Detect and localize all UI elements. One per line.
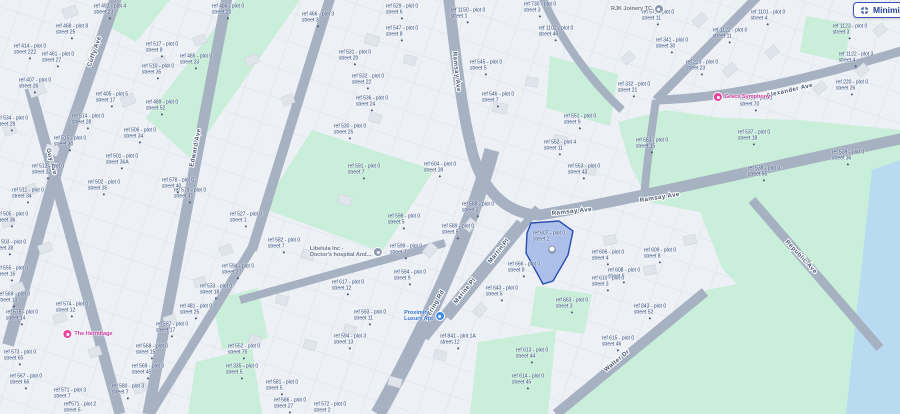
parcel-street: street 18: [200, 290, 232, 296]
parcel-label[interactable]: ref 505 - plot 0street 36: [0, 212, 28, 227]
parcel-street: street 24: [356, 102, 388, 108]
parcel-label[interactable]: ref 573 - plot 0street 65: [4, 350, 36, 365]
parcel-street: street 33: [180, 60, 212, 66]
parcel-marker-dot: [523, 276, 525, 278]
parcel-street: street 2: [533, 237, 565, 243]
parcel-street: street 36: [0, 218, 28, 224]
parcel-label[interactable]: ref 502 - plot 0street 35: [88, 180, 120, 195]
parcel-street: street 45: [132, 370, 164, 376]
parcel-marker-dot: [111, 106, 113, 108]
parcel-marker-dot: [19, 364, 21, 366]
parcel-marker-dot: [405, 258, 407, 260]
parcel-street: street 23: [686, 66, 718, 72]
parcel-street: street 22: [352, 80, 384, 86]
selected-parcel-label[interactable]: ref 607 - plot 0street 2: [533, 231, 565, 242]
parcel-marker-dot: [617, 350, 619, 352]
parcel-marker-dot: [559, 154, 561, 156]
parcel-label[interactable]: ref 506 - plot 0street 34: [124, 128, 156, 143]
parcel-label[interactable]: ref 580 - plot 3street 7: [112, 384, 144, 399]
parcel-marker-dot: [347, 294, 349, 296]
parcel-marker-dot: [195, 68, 197, 70]
parcel-street: street 7: [390, 250, 422, 256]
parcel-marker-dot: [34, 92, 36, 94]
parcel-street: street 28: [72, 120, 104, 126]
parcel-street: street 11: [354, 316, 386, 322]
parcel-street: street 26: [19, 84, 51, 90]
parcel-street: street 15: [136, 350, 168, 356]
parcel-street: street 10: [0, 298, 30, 304]
parcel-label[interactable]: ref 534 - plot 0street 29: [0, 116, 28, 131]
poi-glyph: [377, 251, 380, 254]
parcel-marker-dot: [753, 144, 755, 146]
parcel-label[interactable]: ref 643 - plot 0street 5: [486, 286, 518, 301]
parcel-street: street 12: [56, 308, 88, 314]
parcel-marker-dot: [367, 88, 369, 90]
parcel-label[interactable]: ref 511 - plot 0street 34: [12, 188, 44, 203]
poi-rjk-joinery-tc-label: RJK Joinery TC: [611, 6, 652, 12]
parcel-label[interactable]: ref 512 - plot 0street 32: [32, 164, 64, 179]
poi-proximity-luxury-apt-icon[interactable]: [436, 312, 444, 320]
parcel-marker-dot: [161, 114, 163, 116]
parcel-marker-dot: [103, 194, 105, 196]
parcel-label[interactable]: ref 461 - plot 0street 27: [42, 52, 74, 67]
parcel-label[interactable]: ref 571 - plot 2street 5: [64, 402, 96, 414]
poi-glyph: [438, 315, 441, 318]
parcel-street: street 27: [274, 404, 306, 410]
parcel-street: street 16: [0, 272, 28, 278]
parcel-marker-dot: [195, 318, 197, 320]
parcel-street: street 3: [524, 8, 556, 14]
parcel-street: street 9: [564, 120, 596, 126]
parcel-marker-dot: [763, 180, 765, 182]
parcel-label[interactable]: ref 223 - plot 0street 23: [686, 60, 718, 75]
parcel-street: street 8: [146, 48, 178, 54]
parcel-label[interactable]: ref 405 - plot 5street 17: [96, 92, 128, 107]
parcel-label[interactable]: ref 407 - plot 0street 26: [19, 78, 51, 93]
poi-glyph: [716, 96, 719, 99]
parcel-street: street 5: [486, 292, 518, 298]
parcel-street: street 5: [442, 230, 474, 236]
parcel-street: street 18: [738, 136, 770, 142]
parcel-marker-dot: [847, 164, 849, 166]
parcel-label[interactable]: ref 604 - plot 0street 39: [424, 162, 456, 177]
parcel-marker-dot: [477, 216, 479, 218]
parcel-label[interactable]: ref 485 - plot 0street 33: [180, 54, 212, 69]
poi-the-hermitage-label: The Hermitage: [74, 331, 112, 337]
parcel-street: street 5: [470, 66, 502, 72]
parcel-label[interactable]: ref 594 - plot 3street 13: [334, 334, 366, 349]
parcel-label[interactable]: ref 489 - plot 0street 52: [146, 100, 178, 115]
parcel-label[interactable]: ref 514 - plot 0street 28: [72, 114, 104, 129]
parcel-street: street 15: [636, 144, 668, 150]
parcel-street: street 43: [568, 170, 600, 176]
parcel-street: street 4: [839, 58, 874, 64]
parcel-label[interactable]: ref 503 - plot 0street 38: [0, 240, 26, 255]
parcel-street: street 7: [112, 390, 144, 396]
parcel-label[interactable]: ref 547 - plot 0street 8: [386, 26, 418, 41]
parcel-marker-dot: [849, 38, 851, 40]
poi-the-hermitage[interactable]: The Hermitage: [63, 330, 112, 338]
parcel-marker-dot: [527, 388, 529, 390]
parcel-street: street 27: [42, 58, 74, 64]
parcel-marker-dot: [289, 412, 291, 414]
parcel-marker-dot: [29, 58, 31, 60]
parcel-marker-dot: [57, 66, 59, 68]
parcel-marker-dot: [855, 66, 857, 68]
parcel-marker-dot: [657, 24, 659, 26]
parcel-label[interactable]: ref 568 - plot 0street 15: [136, 344, 168, 359]
parcel-street: street 30: [656, 44, 688, 50]
parcel-street: street 3: [556, 304, 588, 310]
parcel-marker-dot: [457, 238, 459, 240]
parcel-label[interactable]: ref 588 - plot 0street 3: [462, 202, 494, 217]
parcel-label[interactable]: ref 563 - plot 0street 15: [636, 138, 668, 153]
parcel-marker-dot: [177, 192, 179, 194]
parcel-label[interactable]: ref 1122 - plot 0street 11: [713, 28, 748, 43]
parcel-label[interactable]: ref 1101 - plot 0street 4: [751, 10, 786, 25]
parcel-label[interactable]: ref 466 - plot 3street 3: [302, 12, 334, 27]
parcel-marker-dot: [147, 378, 149, 380]
parcel-label[interactable]: ref 539 - plot 0street 36: [832, 150, 864, 165]
poi-glyph: [66, 333, 69, 336]
poi-rjk-joinery-tc-icon[interactable]: [655, 5, 663, 13]
parcel-label[interactable]: ref 591 - plot 0street 7: [348, 164, 380, 179]
parcel-street: street 8: [508, 268, 540, 274]
parcel-label[interactable]: ref 615 - plot 0street 46: [602, 336, 634, 351]
parcel-marker-dot: [71, 316, 73, 318]
parcel-marker-dot: [227, 18, 229, 20]
parcel-marker-dot: [47, 178, 49, 180]
parcel-street: street 7: [482, 98, 514, 104]
parcel-street: street 35: [142, 70, 174, 76]
parcel-street: street 25: [56, 30, 88, 36]
parcel-street: street 44: [516, 354, 548, 360]
parcel-label[interactable]: ref 582 - plot 0street 7: [268, 238, 300, 253]
parcel-street: street 17: [156, 328, 188, 334]
parcel-street: street 8: [644, 254, 676, 260]
parcel-street: street 11: [713, 34, 748, 40]
parcel-label[interactable]: ref 617 - plot 0street 12: [332, 280, 364, 295]
parcel-marker-dot: [555, 40, 557, 42]
parcel-street: street 26: [836, 86, 868, 92]
parcel-label[interactable]: ref 341 - plot 0street 30: [656, 38, 688, 53]
poi-doctors-hospital-label: Libelula Inc -Doctor's hospital And...: [310, 246, 371, 258]
poi-rjk-joinery-tc[interactable]: RJK Joinery TC: [611, 5, 663, 13]
parcel-marker-dot: [11, 280, 13, 282]
parcel-label[interactable]: ref 510 - plot 0street 35: [142, 64, 174, 79]
parcel-marker-dot: [851, 94, 853, 96]
parcel-marker-dot: [659, 262, 661, 264]
parcel-marker-dot: [401, 40, 403, 42]
parcel-marker-dot: [157, 78, 159, 80]
parcel-marker-dot: [11, 130, 13, 132]
parcel-marker-dot: [671, 52, 673, 54]
parcel-label[interactable]: ref 610 - plot 0street 3: [592, 276, 624, 291]
parcel-street: street 70: [740, 102, 772, 108]
parcel-street: street 3: [833, 30, 868, 36]
poi-grace-symphony-icon[interactable]: [714, 93, 722, 101]
parcel-label[interactable]: ref 569 - plot 3street 45: [132, 364, 164, 379]
parcel-marker-dot: [539, 16, 541, 18]
parcel-marker-dot: [354, 64, 356, 66]
poi-proximity-luxury-apt-label: ProximityLuxury Apt: [404, 310, 433, 322]
parcel-street: street 13: [334, 340, 366, 346]
parcel-street: street 20: [339, 56, 371, 62]
parcel-marker-dot: [21, 324, 23, 326]
parcel-marker-dot: [701, 74, 703, 76]
parcel-label[interactable]: ref 594 - plot 0street 2: [222, 264, 254, 279]
parcel-label[interactable]: ref 567 - plot 0street 66: [10, 374, 42, 389]
parcel-marker-dot: [729, 42, 731, 44]
parcel-label[interactable]: ref 529 - plot 0street 6: [386, 4, 418, 19]
minimize-button-label: Minimize Map: [873, 5, 900, 15]
parcel-street: street 7: [54, 394, 86, 400]
parcel-marker-dot: [71, 38, 73, 40]
parcel-label[interactable]: ref 594 - plot 0street 9: [394, 270, 426, 285]
parcel-marker-dot: [317, 26, 319, 28]
parcel-label[interactable]: ref 614 - plot 0street 45: [512, 374, 544, 389]
poi-doctors-hospital[interactable]: Libelula Inc -Doctor's hospital And...: [310, 246, 382, 258]
parcel-marker-dot: [349, 348, 351, 350]
parcel-street: street 12: [332, 286, 364, 292]
parcel-marker-dot: [215, 298, 217, 300]
parcel-label[interactable]: ref 552 - plot 4street 11: [544, 140, 576, 155]
parcel-label[interactable]: ref 536 - plot 0street 24: [356, 96, 388, 111]
parcel-street: street 34: [124, 134, 156, 140]
parcel-label[interactable]: ref 598 - plot 0street 5: [388, 214, 420, 229]
parcel-label[interactable]: ref 730 - plot 0street 3: [524, 2, 556, 17]
parcel-marker-dot: [127, 398, 129, 400]
parcel-label[interactable]: ref 501 - plot 0street 36A: [106, 154, 138, 169]
parcel-street: street 2: [222, 270, 254, 276]
parcel-street: street 46: [539, 32, 574, 38]
parcel-label[interactable]: ref 486 - plot 0street 20: [212, 4, 244, 19]
parcel-street: street 35: [88, 186, 120, 192]
parcel-label[interactable]: ref 606 - plot 0street 4: [592, 250, 624, 265]
parcel-marker-dot: [649, 318, 651, 320]
parcel-street: street 30: [54, 142, 86, 148]
parcel-label[interactable]: ref 527 - plot 0street 1: [230, 212, 262, 227]
parcel-street: street 32: [32, 170, 64, 176]
parcel-label[interactable]: ref 220 - plot 0street 26: [836, 80, 868, 95]
parcel-label[interactable]: ref 537 - plot 0street 18: [738, 130, 770, 145]
parcel-marker-dot: [243, 358, 245, 360]
parcel-label[interactable]: ref 538 - plot 0street 55: [748, 166, 780, 181]
parcel-street: street 1: [451, 14, 486, 20]
parcel-street: street 36A: [106, 160, 138, 166]
parcel-label[interactable]: ref 492 - plot 4street 23: [94, 4, 126, 19]
parcel-label[interactable]: ref 841 - plot 1Astreet 12: [440, 334, 476, 349]
parcel-label[interactable]: ref 575 - plot 0street 14: [6, 310, 38, 325]
parcel-street: street 5: [388, 220, 420, 226]
poi-the-hermitage-icon[interactable]: [63, 330, 71, 338]
parcel-label[interactable]: ref 581 - plot 0street 5: [266, 380, 298, 395]
parcel-street: street 41: [174, 194, 206, 200]
parcel-street: street 52: [634, 310, 666, 316]
parcel-label[interactable]: ref 515 - plot 0street 30: [54, 136, 86, 151]
parcel-marker-dot: [467, 22, 469, 24]
parcel-marker-dot: [139, 142, 141, 144]
parcel-label[interactable]: ref 546 - plot 0street 7: [482, 92, 514, 107]
poi-proximity-luxury-apt[interactable]: ProximityLuxury Apt: [404, 310, 444, 322]
parcel-street: street 23: [94, 10, 126, 16]
parcel-street: street 38: [0, 246, 26, 252]
parcel-marker-dot: [237, 278, 239, 280]
parcel-street: street 6: [386, 10, 418, 16]
parcel-street: street 39: [424, 168, 456, 174]
parcel-marker-dot: [651, 152, 653, 154]
parcel-marker-dot: [109, 18, 111, 20]
parcel-label[interactable]: ref 1102 - plot 0street 46: [539, 26, 574, 41]
parcel-label[interactable]: ref 517 - plot 0street 8: [146, 42, 178, 57]
parcel-street: street 9: [394, 276, 426, 282]
parcel-marker-dot: [497, 106, 499, 108]
parcel-street: street 52: [146, 106, 178, 112]
parcel-label[interactable]: ref 613 - plot 0street 44: [516, 348, 548, 363]
parcel-marker-dot: [371, 110, 373, 112]
parcel-marker-dot: [241, 378, 243, 380]
parcel-label[interactable]: ref 545 - plot 0street 5: [470, 60, 502, 75]
selected-parcel-marker[interactable]: [549, 246, 556, 253]
parcel-marker-dot: [401, 18, 403, 20]
parcel-label[interactable]: ref 586 - plot 0street 27: [274, 398, 306, 413]
parcel-label[interactable]: ref 531 - plot 0street 20: [339, 50, 371, 65]
parcel-street: street 11: [544, 146, 576, 152]
parcel-street: street 45: [512, 380, 544, 386]
parcel-label[interactable]: ref 572 - plot 0street 2: [314, 402, 346, 414]
parcel-street: street 4: [592, 256, 624, 262]
parcel-marker-dot: [409, 284, 411, 286]
poi-grace-symphony-label: Grace Symphony: [725, 94, 770, 100]
parcel-label[interactable]: ref 533 - plot 0street 18: [200, 284, 232, 299]
parcel-label[interactable]: ref 666 - plot 0street 8: [508, 262, 540, 277]
parcel-marker-dot: [403, 228, 405, 230]
parcel-marker-dot: [189, 202, 191, 204]
parcel-street: street 34: [12, 194, 44, 200]
parcel-street: street 66: [10, 380, 42, 386]
parcel-label[interactable]: ref 553 - plot 0street 43: [568, 164, 600, 179]
parcel-label[interactable]: ref 1123 - plot 0street 3: [833, 24, 868, 39]
parcel-label[interactable]: ref 1150 - plot 0street 1: [451, 8, 486, 23]
parcel-marker-dot: [457, 348, 459, 350]
parcel-marker-dot: [579, 128, 581, 130]
parcel-street: street 17: [96, 98, 128, 104]
parcel-marker-dot: [571, 312, 573, 314]
parcel-marker-dot: [161, 56, 163, 58]
parcel-marker-dot: [245, 226, 247, 228]
parcel-marker-dot: [485, 74, 487, 76]
parcel-label[interactable]: ref 599 - plot 0street 7: [390, 244, 422, 259]
parcel-label[interactable]: ref 578 - plot 0street 40: [162, 178, 194, 193]
parcel-label[interactable]: ref 551 - plot 0street 9: [564, 114, 596, 129]
parcel-street: street 8: [386, 32, 418, 38]
parcel-marker-dot: [607, 290, 609, 292]
parcel-marker-dot: [69, 150, 71, 152]
parcel-label[interactable]: ref 843 - plot 0street 52: [634, 304, 666, 319]
parcel-label[interactable]: ref 335 - plot 0street 5: [226, 364, 258, 379]
map-labels-layer: ref 492 - plot 4street 23ref 486 - plot …: [0, 0, 900, 414]
parcel-marker-dot: [121, 168, 123, 170]
parcel-label[interactable]: ref 468 - plot 8street 25: [56, 24, 88, 39]
parcel-marker-dot: [501, 300, 503, 302]
parcel-label[interactable]: ref 663 - plot 0street 3: [556, 298, 588, 313]
parcel-street: street 7: [348, 170, 380, 176]
parcel-label[interactable]: ref 481 - plot 0street 25: [180, 304, 212, 319]
parcel-marker-dot: [13, 306, 15, 308]
parcel-label[interactable]: ref 532 - plot 0street 22: [352, 74, 384, 89]
parcel-street: street 21: [618, 88, 650, 94]
parcel-label[interactable]: ref 589 - plot 0street 5: [442, 224, 474, 239]
parcel-marker-dot: [281, 394, 283, 396]
parcel-street: street 29: [0, 122, 28, 128]
parcel-marker-dot: [583, 178, 585, 180]
parcel-street: street 3: [462, 208, 494, 214]
parcel-street: street 3: [302, 18, 334, 24]
parcel-street: street 1: [230, 218, 262, 224]
parcel-street: street 46: [602, 342, 634, 348]
poi-doctors-hospital-icon[interactable]: [374, 248, 382, 256]
parcel-street: street 65: [4, 356, 36, 362]
parcel-label[interactable]: ref 609 - plot 0street 8: [644, 248, 676, 263]
parcel-marker-dot: [171, 336, 173, 338]
parcel-street: street 5: [64, 408, 96, 414]
parcel-marker-dot: [755, 110, 757, 112]
parcel-label[interactable]: ref 552 - plot 0street 75: [228, 344, 260, 359]
parcel-label[interactable]: ref 587 - plot 0street 17: [156, 322, 188, 337]
parcel-label[interactable]: ref 530 - plot 0street 25: [334, 124, 366, 139]
parcel-marker-dot: [363, 178, 365, 180]
parcel-marker-dot: [607, 264, 609, 266]
parcel-marker-dot: [439, 176, 441, 178]
parcel-label[interactable]: ref 1122 - plot 3street 4: [839, 52, 874, 67]
parcel-marker-dot: [283, 252, 285, 254]
parcel-label[interactable]: ref 574 - plot 0street 12: [56, 302, 88, 317]
parcel-street: street 25: [180, 310, 212, 316]
parcel-marker-dot: [9, 254, 11, 256]
parcel-label[interactable]: ref 332 - plot 0street 21: [618, 82, 650, 97]
parcel-street: street 5: [226, 370, 258, 376]
minimize-icon: [860, 6, 869, 15]
parcel-marker-dot: [633, 96, 635, 98]
parcel-street: street 36: [832, 156, 864, 162]
poi-glyph: [657, 8, 660, 11]
parcel-marker-dot: [87, 128, 89, 130]
parcel-street: street 75: [228, 350, 260, 356]
parcel-street: street 55: [748, 172, 780, 178]
minimize-map-button[interactable]: Minimize Map: [853, 2, 900, 18]
parcel-marker-dot: [151, 358, 153, 360]
parcel-marker-dot: [27, 202, 29, 204]
parcel-marker-dot: [531, 362, 533, 364]
map-canvas[interactable]: Cuffy AveGuy AveEdward AveRamsay AveRams…: [0, 0, 900, 414]
parcel-marker-dot: [349, 138, 351, 140]
parcel-street: street 4: [751, 16, 786, 22]
parcel-marker-dot: [25, 388, 27, 390]
parcel-street: street 14: [6, 316, 38, 322]
parcel-marker-dot: [11, 226, 13, 228]
parcel-street: street 25: [334, 130, 366, 136]
parcel-street: street 2: [314, 408, 346, 414]
parcel-street: street 20: [212, 10, 244, 16]
parcel-marker-dot: [767, 24, 769, 26]
poi-grace-symphony[interactable]: Grace Symphony: [714, 93, 770, 101]
parcel-label[interactable]: ref 569 - plot 0street 10: [0, 292, 30, 307]
parcel-marker-dot: [369, 324, 371, 326]
parcel-label[interactable]: ref 555 - plot 0street 16: [0, 266, 28, 281]
parcel-street: street 3: [592, 282, 624, 288]
parcel-label[interactable]: ref 593 - plot 0street 11: [354, 310, 386, 325]
parcel-street: street 7: [268, 244, 300, 250]
